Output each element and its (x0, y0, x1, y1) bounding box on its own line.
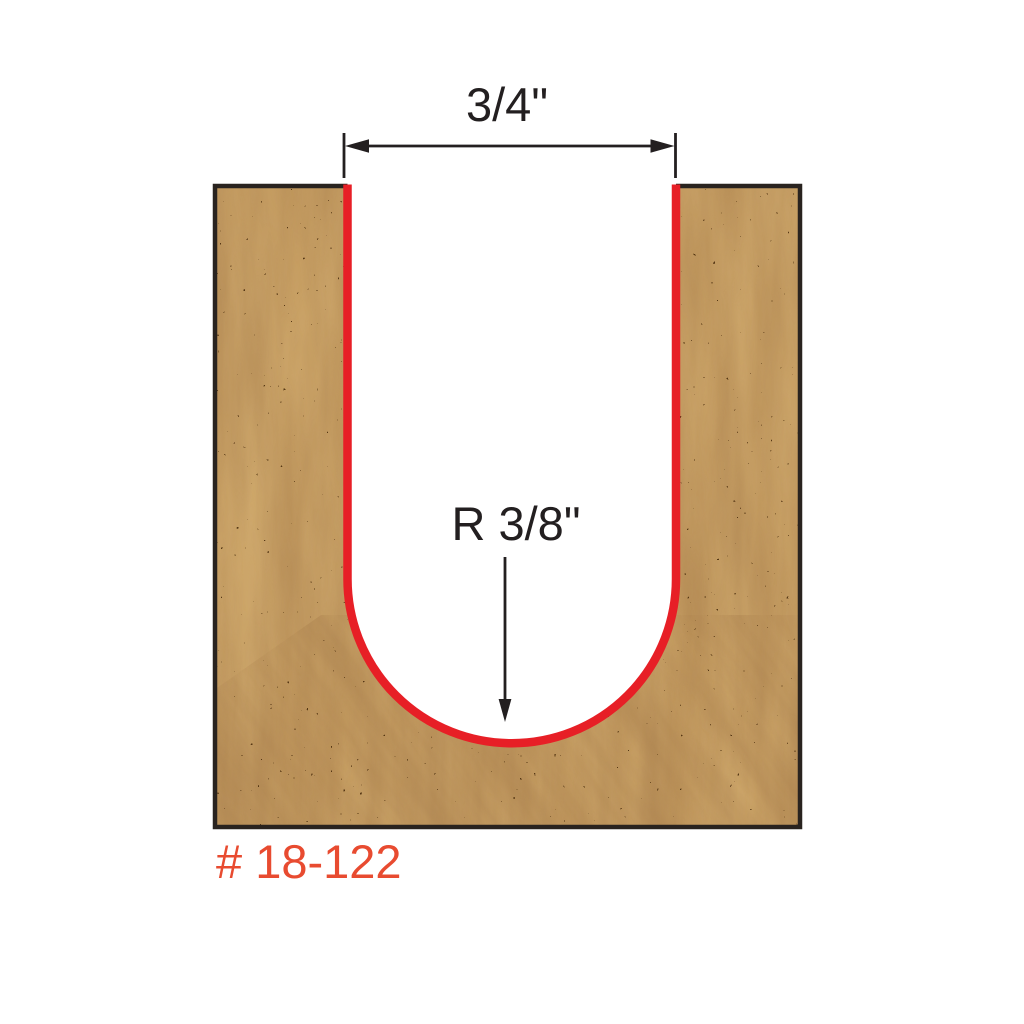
width-dimension-label: 3/4" (466, 78, 548, 131)
router-bit-cut-profile-diagram: 3/4" R 3/8" # 18-122 (0, 0, 1024, 1024)
part-number-label: # 18-122 (216, 835, 402, 888)
arrowhead-left-icon (345, 139, 369, 153)
radius-dimension-label: R 3/8" (451, 497, 580, 550)
groove-cutout (348, 158, 677, 743)
diagram-canvas: 3/4" R 3/8" # 18-122 (0, 0, 1024, 1024)
arrowhead-right-icon (651, 139, 675, 153)
